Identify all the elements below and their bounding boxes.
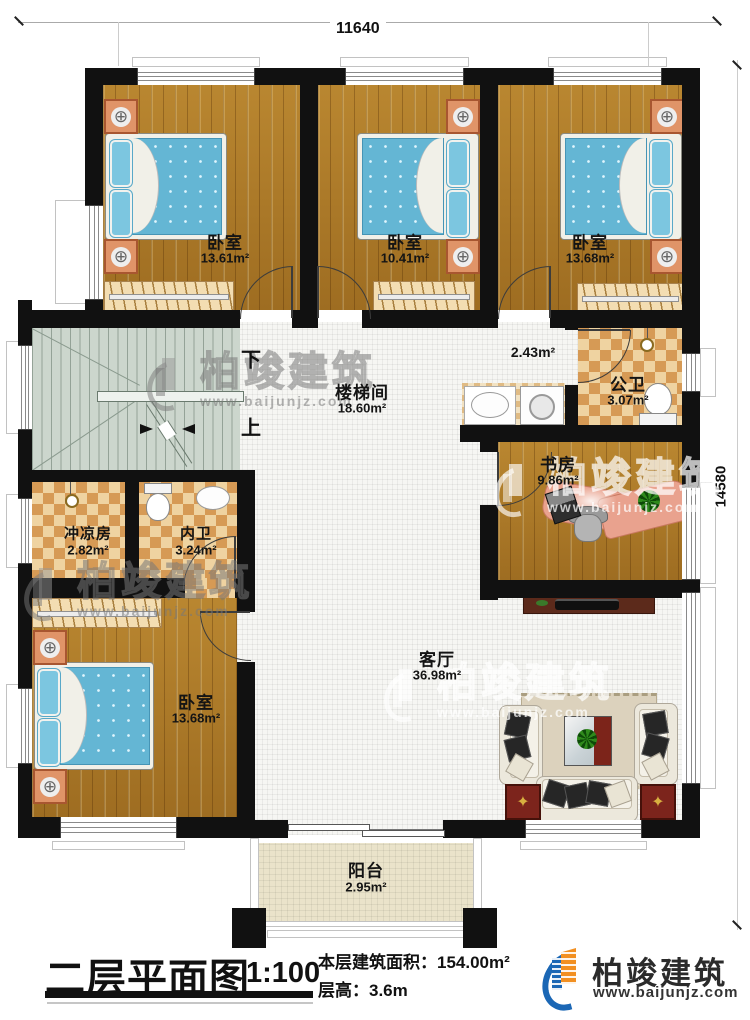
balcony-railing — [257, 921, 475, 927]
window-sill — [548, 57, 667, 67]
wardrobe-rail — [109, 294, 229, 300]
room-area-bedroom-4: 13.68m² — [172, 711, 220, 726]
wardrobe — [373, 281, 475, 311]
window — [85, 205, 103, 300]
nightstand: ⊕ — [446, 239, 480, 274]
brand-logo-icon — [552, 958, 562, 990]
wardrobe — [104, 281, 234, 311]
window-sill — [132, 57, 260, 67]
door-leaf — [317, 266, 319, 318]
washing-machine-icon — [520, 386, 564, 425]
nightstand: ⊕ — [104, 239, 138, 274]
stair-rail — [97, 391, 244, 402]
balcony-railing — [267, 930, 465, 938]
wall — [175, 817, 255, 838]
dimension-top-value: 11640 — [330, 20, 386, 38]
wall — [640, 820, 700, 838]
window — [18, 498, 32, 564]
door-leaf — [291, 266, 293, 318]
wall — [300, 85, 318, 310]
wall — [18, 817, 60, 838]
room-area-study: 9.86m² — [537, 473, 578, 488]
floor-height-info: 层高：3.6m — [318, 976, 408, 1001]
balcony-pillar — [463, 908, 497, 948]
sink-icon — [471, 392, 509, 418]
stair-arrow-icon — [182, 424, 195, 434]
pillow — [38, 719, 60, 766]
plant-icon — [577, 729, 597, 749]
window-sill — [520, 841, 647, 850]
room-area-shower: 2.82m² — [67, 543, 108, 558]
window — [18, 345, 32, 430]
sofa-cushion — [642, 710, 669, 737]
wall — [237, 662, 255, 820]
floor-area-value: 154.00m² — [437, 953, 510, 972]
brand-logo: 柏竣建筑 www.baijunjz.com — [544, 942, 744, 1008]
wall — [362, 310, 498, 328]
fan-knob-icon: ⊕ — [111, 247, 131, 267]
floor-plan: 11640 14580 下 上 ⊕ ⊕ ⊕ ⊕ ⊕ ⊕ — [0, 0, 750, 1014]
wall — [18, 578, 185, 598]
dimension-tick — [712, 16, 722, 26]
room-area-bedroom-2: 10.41m² — [381, 251, 429, 266]
wall — [125, 482, 139, 578]
side-table: ✦ — [640, 784, 676, 820]
room-area-balcony: 2.95m² — [345, 880, 386, 895]
pillow — [38, 669, 60, 716]
pillow — [650, 190, 672, 237]
wall — [480, 580, 700, 598]
sliding-door-panel — [288, 824, 370, 831]
sink-icon — [196, 486, 230, 510]
wardrobe — [32, 598, 162, 628]
room-area-inner-bath: 3.24m² — [175, 543, 216, 558]
nightstand: ⊕ — [104, 99, 138, 134]
wall — [18, 470, 250, 482]
title-underline-shadow — [47, 1002, 313, 1004]
wall — [85, 68, 103, 205]
room-label-shower: 冲凉房 — [64, 523, 112, 544]
shower-drain-icon — [640, 338, 654, 352]
pillow — [650, 140, 672, 187]
room-area-bedroom-3: 13.68m² — [566, 251, 614, 266]
wall — [292, 310, 318, 328]
tv-decor — [536, 600, 548, 606]
wall — [565, 385, 578, 425]
nightstand: ⊕ — [650, 239, 684, 274]
nightstand: ⊕ — [650, 99, 684, 134]
wall — [462, 68, 553, 85]
pillow — [110, 190, 132, 237]
floor-height-label: 层高： — [318, 981, 369, 1000]
brand-url: www.baijunjz.com — [593, 984, 738, 1001]
tv-icon — [555, 599, 619, 610]
room-area-vestibule: 2.43m² — [511, 344, 555, 360]
room-area-bedroom-1: 13.61m² — [201, 251, 249, 266]
pillow — [447, 140, 469, 187]
office-chair-seat — [574, 514, 602, 542]
fan-knob-icon: ⊕ — [453, 107, 473, 127]
room-area-living: 36.98m² — [413, 668, 461, 683]
sliding-door-panel — [362, 830, 445, 837]
dimension-tick — [14, 16, 24, 26]
floor-area-info: 本层建筑面积：154.00m² — [318, 948, 510, 973]
sofa-cushion — [504, 712, 531, 739]
balcony-pillar — [232, 908, 266, 948]
window-sill — [700, 348, 716, 397]
brand-logo-icon — [561, 948, 576, 984]
fan-knob-icon: ⊕ — [40, 638, 60, 658]
window — [137, 68, 255, 85]
door-leaf — [234, 536, 236, 588]
stair-down-label: 下 — [241, 344, 261, 373]
dimension-extension — [648, 22, 649, 66]
window — [682, 592, 700, 784]
nightstand: ⊕ — [446, 99, 480, 134]
fan-knob-icon: ⊕ — [111, 107, 131, 127]
dimension-line-right — [737, 60, 738, 930]
wall — [255, 820, 288, 838]
lamp-icon: ✦ — [516, 792, 529, 812]
wall — [18, 310, 240, 328]
wall — [565, 322, 578, 330]
window — [682, 353, 700, 392]
room-area-public-bath: 3.07m² — [607, 393, 648, 408]
wall — [18, 300, 32, 345]
nightstand: ⊕ — [33, 769, 67, 804]
door-leaf — [549, 266, 551, 318]
fan-knob-icon: ⊕ — [657, 107, 677, 127]
wall — [480, 425, 498, 452]
washer-drum — [529, 394, 555, 420]
door-leaf — [200, 611, 250, 613]
title-underline — [45, 991, 313, 998]
fan-knob-icon: ⊕ — [40, 777, 60, 797]
window — [18, 688, 32, 764]
room-label-inner-bath: 内卫 — [180, 523, 212, 544]
wardrobe-rail — [378, 294, 470, 300]
wardrobe-rail — [582, 296, 679, 302]
fan-knob-icon: ⊕ — [657, 247, 677, 267]
fan-knob-icon: ⊕ — [453, 247, 473, 267]
window — [345, 68, 464, 85]
wall — [18, 428, 32, 498]
stair-arrow-icon — [140, 424, 153, 434]
floor-height-value: 3.6m — [369, 981, 408, 1000]
room-area-stairwell: 18.60m² — [338, 401, 386, 416]
floor-area-label: 本层建筑面积： — [318, 953, 437, 972]
room-label-balcony: 阳台 — [348, 857, 384, 882]
wall — [253, 68, 345, 85]
window-sill — [55, 200, 87, 304]
dimension-extension — [118, 22, 119, 66]
wall — [480, 85, 498, 310]
side-table: ✦ — [505, 784, 541, 820]
pillow — [110, 140, 132, 187]
window — [553, 68, 662, 85]
wall — [235, 578, 255, 598]
drawing-scale: 1:100 — [246, 957, 320, 990]
window — [60, 817, 177, 838]
nightstand: ⊕ — [33, 630, 67, 665]
dimension-right-value: 14580 — [712, 466, 729, 508]
wall — [443, 820, 525, 838]
door-leaf — [497, 452, 499, 505]
wardrobe-rail — [37, 611, 157, 617]
toilet-icon — [146, 493, 170, 521]
door-leaf — [578, 329, 630, 331]
pillow — [447, 190, 469, 237]
window-sill — [700, 587, 716, 789]
window-sill — [52, 841, 185, 850]
window — [525, 820, 642, 838]
shower-drain-icon — [65, 494, 79, 508]
window-sill — [340, 57, 469, 67]
lamp-icon: ✦ — [651, 792, 664, 812]
plant-icon — [638, 490, 660, 512]
wardrobe — [577, 283, 684, 313]
stair-up-label: 上 — [241, 412, 261, 441]
window — [682, 487, 700, 580]
